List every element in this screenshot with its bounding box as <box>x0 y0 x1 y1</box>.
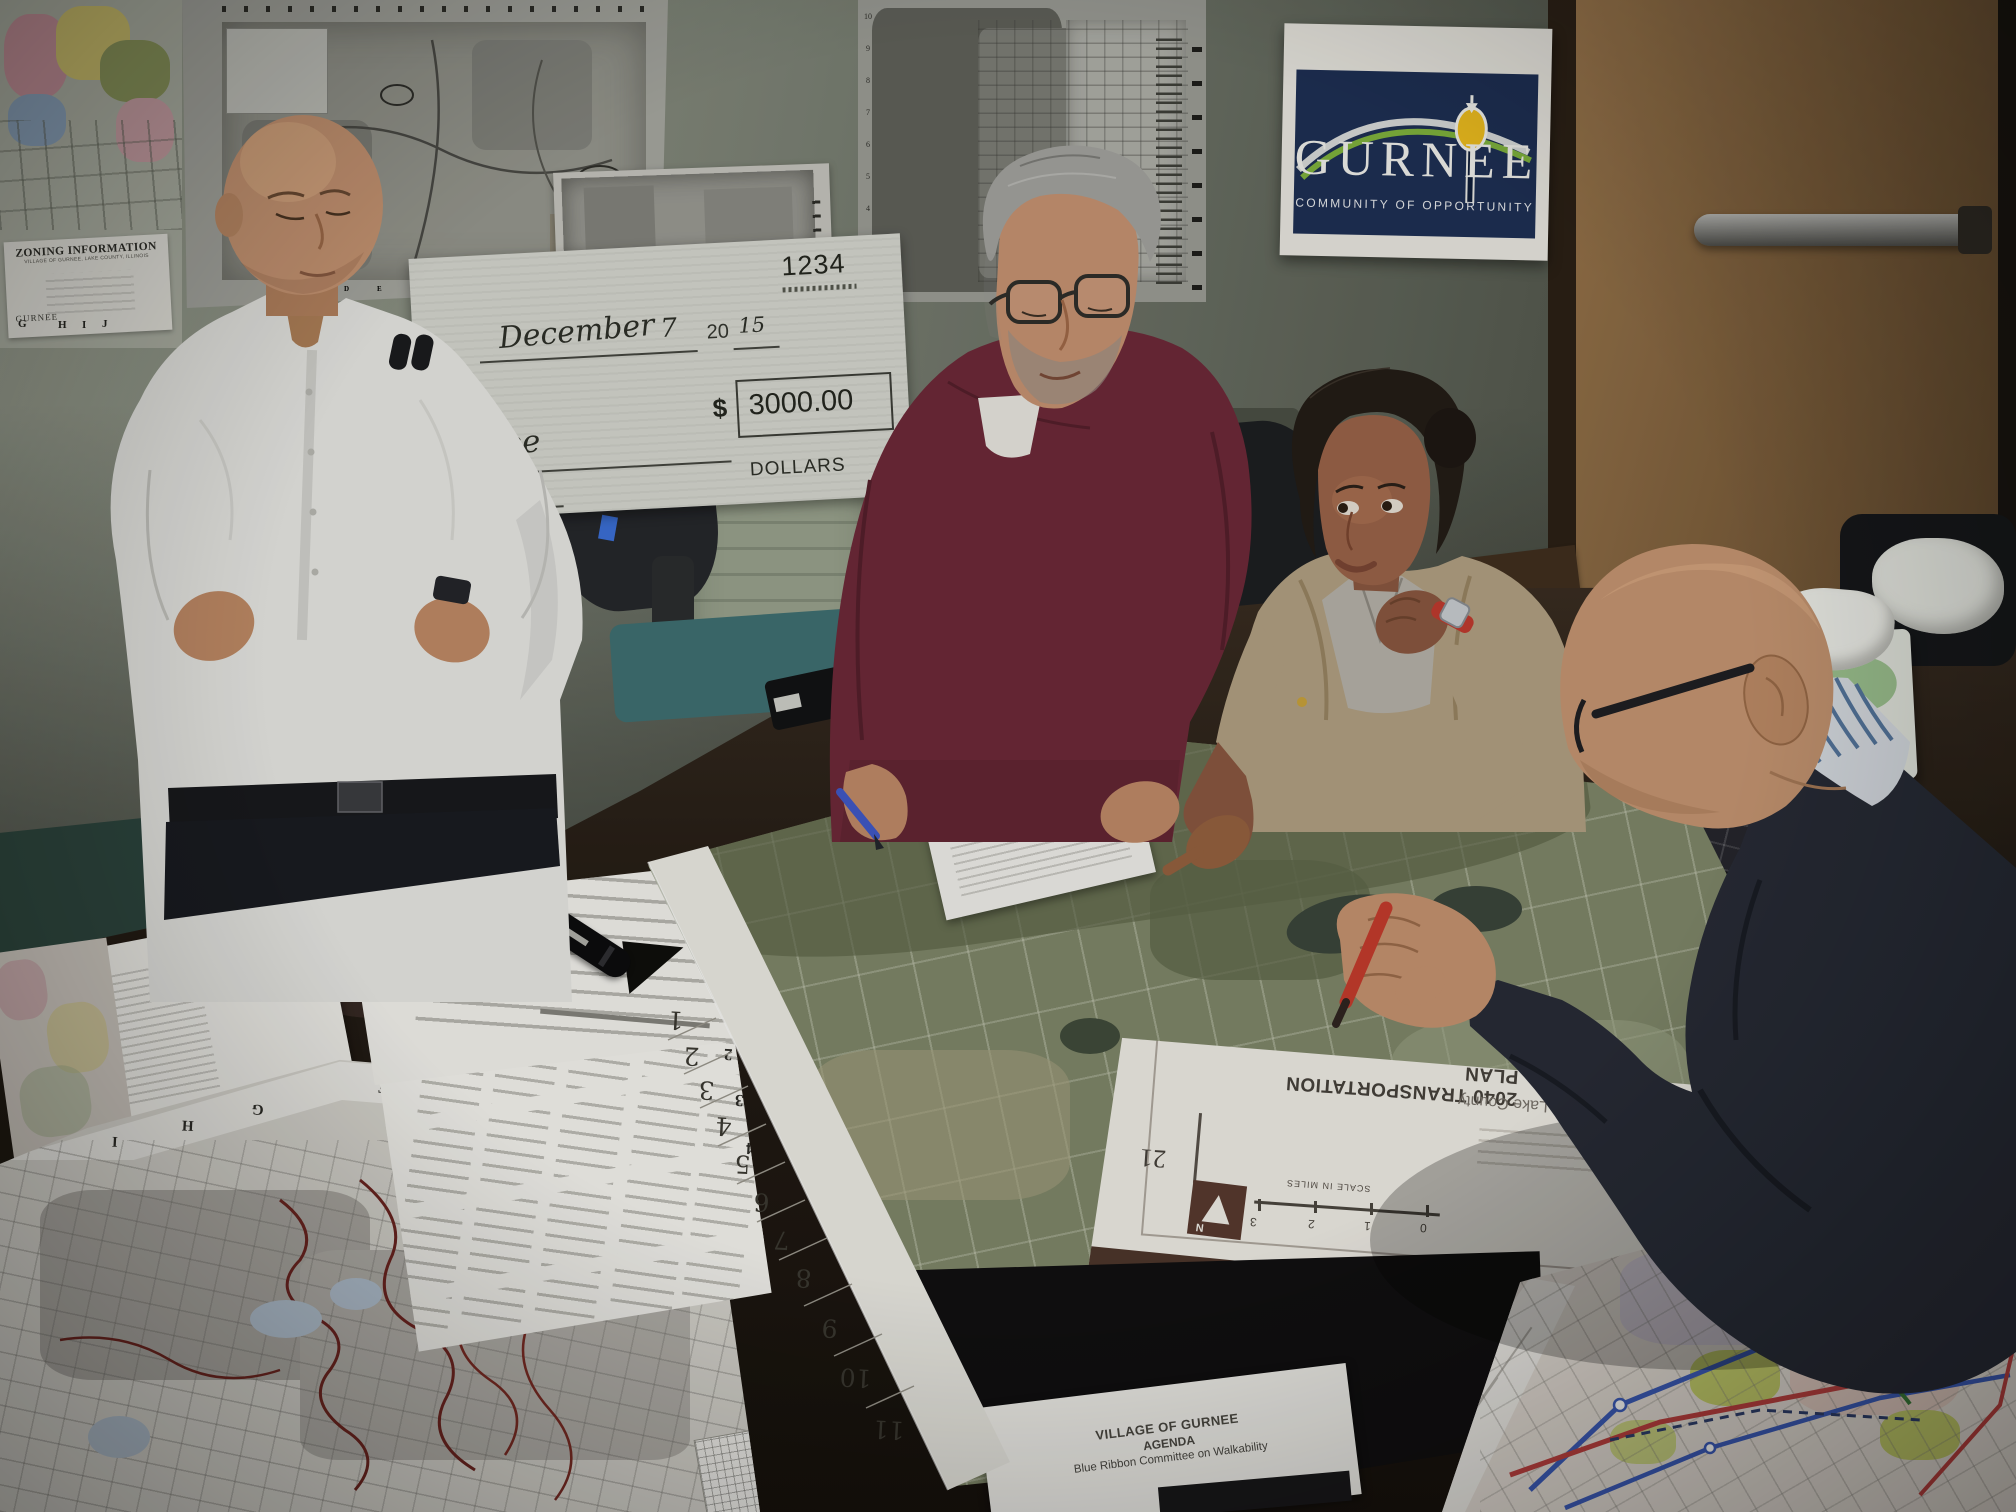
margin-number: 8 <box>795 1263 812 1293</box>
woman-pointing-finger <box>1168 852 1198 870</box>
person-left-man <box>111 115 583 1002</box>
aerial-map-margin: 1 2 3 4 5 6 7 8 9 10 11 <box>648 846 1010 1490</box>
margin-number: 5 <box>734 1149 751 1179</box>
margin-number: 4 <box>715 1111 732 1141</box>
people-layer: 1 2 3 4 5 6 7 8 9 10 11 <box>0 0 2016 1512</box>
margin-number: 9 <box>821 1313 838 1343</box>
margin-number: 11 <box>872 1414 905 1445</box>
woman-cuff-button <box>1297 697 1307 707</box>
margin-number: 10 <box>839 1362 872 1393</box>
margin-number: 1 <box>667 1005 684 1035</box>
person-center-man <box>830 146 1252 852</box>
margin-number: 7 <box>773 1225 790 1255</box>
margin-number: 2 <box>683 1041 700 1071</box>
meeting-photo: ZONING INFORMATION VILLAGE OF GURNEE, LA… <box>0 0 2016 1512</box>
red-pen-tip <box>1336 1002 1346 1024</box>
left-man-belt-buckle <box>338 782 382 812</box>
margin-number: 3 <box>698 1075 715 1105</box>
left-man-ear <box>215 193 243 237</box>
woman-hair-bun <box>1424 408 1476 468</box>
margin-number: 6 <box>753 1187 770 1217</box>
right-man-hand-pen <box>1336 893 1496 1028</box>
